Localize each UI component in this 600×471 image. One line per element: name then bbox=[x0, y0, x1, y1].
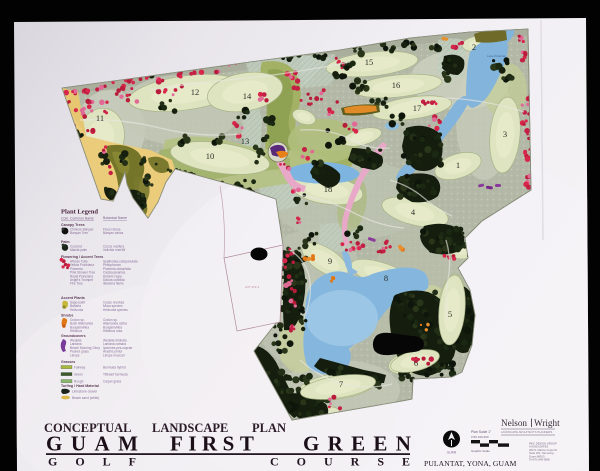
svg-text:Nelson: Nelson bbox=[501, 418, 527, 428]
svg-text:1: 1 bbox=[456, 160, 460, 170]
svg-text:Heliconia species: Heliconia species bbox=[103, 308, 128, 312]
svg-text:7: 7 bbox=[339, 379, 343, 389]
svg-text:Veitchia merrillii: Veitchia merrillii bbox=[103, 248, 125, 252]
svg-text:LANDSCAPE ARCHITECTS PLANNERS: LANDSCAPE ARCHITECTS PLANNERS bbox=[501, 430, 552, 434]
svg-text:Fairway: Fairway bbox=[74, 366, 86, 370]
svg-text:Heliconia: Heliconia bbox=[70, 308, 83, 312]
svg-text:12: 12 bbox=[191, 87, 200, 97]
svg-text:Hibiscus: Hibiscus bbox=[70, 329, 82, 333]
svg-text:11: 11 bbox=[96, 113, 104, 123]
svg-text:LOT 372-1: LOT 372-1 bbox=[245, 285, 260, 289]
svg-text:GOLF: GOLF bbox=[48, 455, 154, 469]
svg-text:Hibiscus rosa: Hibiscus rosa bbox=[103, 329, 122, 333]
svg-text:Liriope muscari: Liriope muscari bbox=[103, 353, 125, 357]
svg-text:Palm: Palm bbox=[61, 240, 70, 244]
svg-text:Tifdwarf bermuda: Tifdwarf bermuda bbox=[103, 373, 128, 377]
svg-text:Grasses: Grasses bbox=[61, 360, 75, 364]
svg-text:5: 5 bbox=[448, 309, 452, 319]
svg-text:Bermuda hybrid: Bermuda hybrid bbox=[103, 366, 126, 370]
svg-text:Wright: Wright bbox=[534, 418, 560, 428]
svg-text:Turfing / Hard Material: Turfing / Hard Material bbox=[61, 384, 99, 388]
svg-text:Groundcovers: Groundcovers bbox=[61, 334, 86, 338]
svg-text:Green: Green bbox=[74, 373, 83, 377]
svg-text:GUAM: GUAM bbox=[46, 432, 147, 456]
svg-text:FIRST: FIRST bbox=[170, 432, 259, 456]
svg-text:15: 15 bbox=[365, 57, 374, 67]
svg-text:17: 17 bbox=[413, 103, 422, 113]
svg-text:Limestone Gravel: Limestone Gravel bbox=[72, 390, 97, 394]
svg-text:Illawarra flame: Illawarra flame bbox=[103, 282, 124, 286]
svg-text:18: 18 bbox=[324, 184, 333, 194]
svg-text:Botanical Name: Botanical Name bbox=[103, 216, 127, 220]
svg-text:Com. Common Name: Com. Common Name bbox=[61, 217, 94, 221]
svg-text:Rough: Rough bbox=[74, 380, 84, 384]
svg-text:Lake Pulantat: Lake Pulantat bbox=[487, 54, 506, 58]
svg-text:8: 8 bbox=[384, 273, 388, 283]
svg-text:13: 13 bbox=[241, 136, 250, 146]
svg-text:14: 14 bbox=[243, 91, 252, 101]
svg-text:Canopy Trees: Canopy Trees bbox=[61, 223, 85, 227]
svg-text:Beach sand (white): Beach sand (white) bbox=[72, 396, 99, 400]
svg-text:Graphic Scale: Graphic Scale bbox=[471, 449, 490, 453]
svg-text:Flowering / Accent Trees: Flowering / Accent Trees bbox=[61, 255, 103, 259]
svg-text:Carpet grass: Carpet grass bbox=[103, 380, 122, 384]
svg-text:Plant Legend: Plant Legend bbox=[61, 209, 98, 216]
svg-text:GREEN: GREEN bbox=[303, 432, 419, 456]
svg-text:16: 16 bbox=[392, 80, 401, 90]
svg-text:9: 9 bbox=[328, 256, 332, 266]
svg-text:Shrubs: Shrubs bbox=[61, 314, 73, 318]
svg-text:Manila palm: Manila palm bbox=[70, 248, 88, 252]
svg-text:Tel 671-646-5800: Tel 671-646-5800 bbox=[529, 458, 550, 462]
svg-text:Accent Plants: Accent Plants bbox=[61, 296, 85, 300]
svg-text:Plan Scale 1": Plan Scale 1" bbox=[471, 430, 492, 434]
svg-text:Fire Tree: Fire Tree bbox=[70, 282, 83, 286]
svg-text:Banyan carica: Banyan carica bbox=[103, 231, 123, 235]
svg-text:GUAM: GUAM bbox=[447, 451, 457, 455]
svg-text:0 50 100 200: 0 50 100 200 bbox=[471, 435, 489, 439]
svg-text:3: 3 bbox=[503, 129, 507, 139]
svg-text:Liriope: Liriope bbox=[70, 353, 80, 357]
svg-text:10: 10 bbox=[206, 151, 215, 161]
svg-text:COURSE: COURSE bbox=[270, 455, 428, 469]
svg-text:6: 6 bbox=[414, 358, 418, 368]
svg-text:2: 2 bbox=[472, 42, 476, 52]
svg-text:Banyan Tree: Banyan Tree bbox=[70, 231, 88, 235]
svg-text:PULANTAT, YONA, GUAM: PULANTAT, YONA, GUAM bbox=[424, 459, 517, 468]
